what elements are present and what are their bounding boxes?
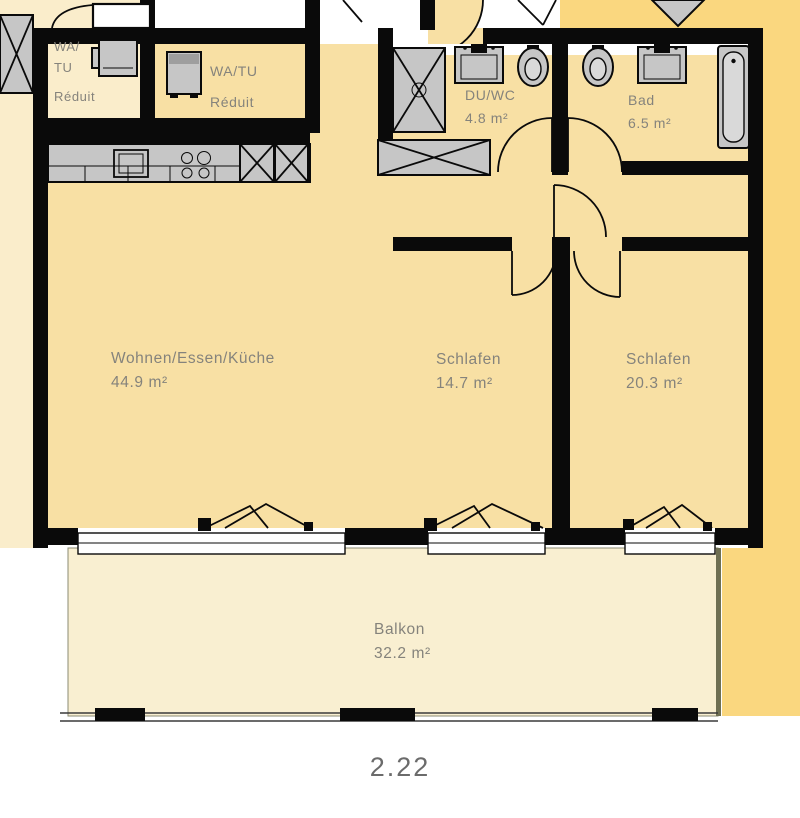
floorplan-page: WA/ TU Réduit WA/TU Réduit DU/WC 4.8 m² …: [0, 0, 800, 818]
shaft-icon: [0, 15, 33, 93]
sink-icon: [455, 44, 503, 83]
washer-icon: [167, 52, 201, 98]
sink-icon: [638, 44, 686, 83]
floorplan-drawing: [0, 0, 800, 818]
room-label-reduit-left: WA/ TU Réduit: [54, 36, 95, 107]
room-label-reduit-right: WA/TU Réduit: [210, 60, 258, 114]
room-label-schlafen-right: Schlafen 20.3 m²: [626, 348, 691, 396]
bathtub-icon: [718, 46, 749, 148]
tall-unit-icon: [240, 144, 308, 182]
built-in-cabinet-icon: [378, 140, 490, 175]
room-label-schlafen-mid: Schlafen 14.7 m²: [436, 348, 501, 396]
room-label-bad: Bad 6.5 m²: [628, 89, 671, 135]
shower-icon: [393, 48, 445, 132]
room-label-duwc: DU/WC 4.8 m²: [465, 84, 515, 130]
unit-number: 2.22: [0, 752, 800, 783]
washer-icon: [92, 40, 137, 76]
room-label-wohnen: Wohnen/Essen/Küche 44.9 m²: [111, 347, 275, 395]
room-label-balkon: Balkon 32.2 m²: [374, 618, 431, 666]
kitchen-counter: [48, 144, 310, 182]
